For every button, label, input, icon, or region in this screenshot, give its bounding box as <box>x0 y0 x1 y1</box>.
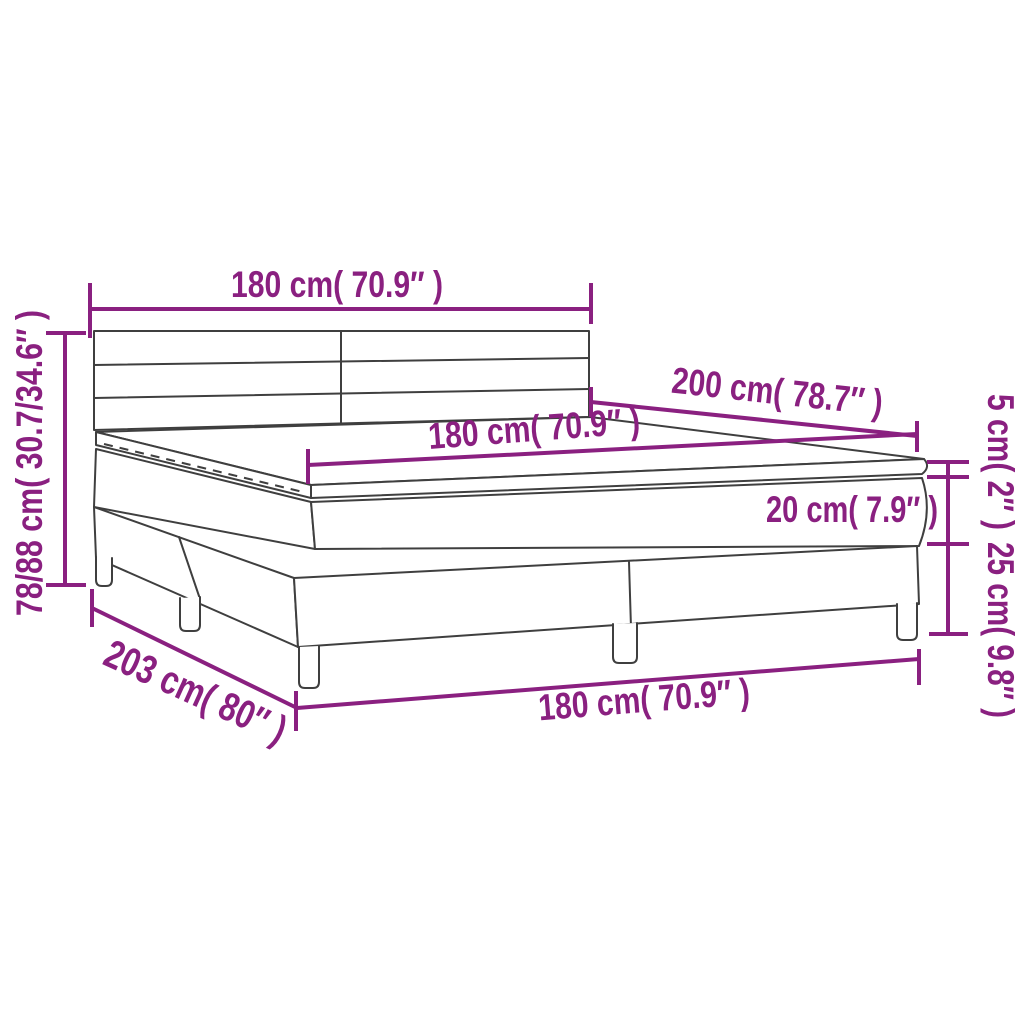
bed-dimension-drawing: 180 cm( 70.9″ ) 180 cm( 70.9″ ) 200 cm( … <box>0 0 1024 1024</box>
label-headboard-width: 180 cm( 70.9″ ) <box>231 264 443 305</box>
label-base-width: 180 cm( 70.9″ ) <box>537 671 752 729</box>
bed-leg-left-middle <box>180 597 200 631</box>
bed-leg-foot-right <box>897 603 917 640</box>
bed-leg-front-corner <box>299 646 319 688</box>
bed-leg-foot-middle <box>613 623 637 663</box>
label-base-height: 25 cm( 9.8″ ) <box>980 542 1021 718</box>
bed-leg-back-left <box>96 557 112 586</box>
label-total-height: 78/88 cm( 30.7/34.6″ ) <box>9 310 50 616</box>
label-mattress-thickness: 20 cm( 7.9″ ) <box>766 489 938 530</box>
base-foot-side <box>294 546 919 647</box>
dimension-diagram: 180 cm( 70.9″ ) 180 cm( 70.9″ ) 200 cm( … <box>0 0 1024 1024</box>
label-topper-thickness: 5 cm( 2″ ) <box>980 394 1021 530</box>
